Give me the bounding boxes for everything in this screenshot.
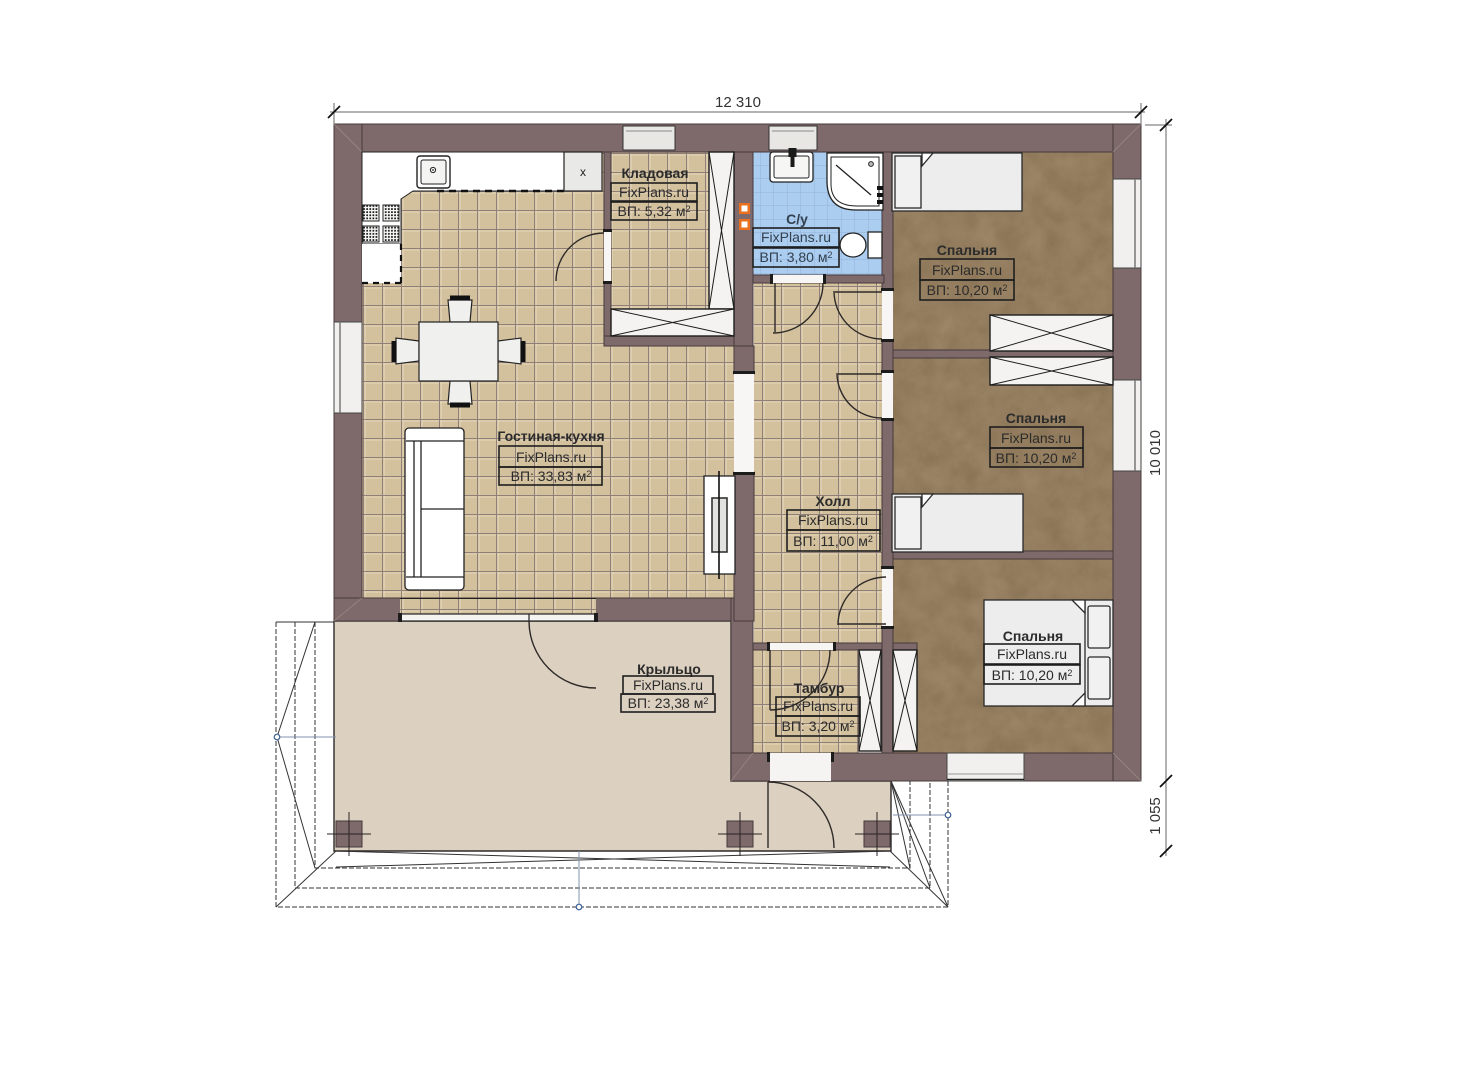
svg-text:Спальня: Спальня <box>937 242 997 258</box>
svg-text:FixPlans.ru: FixPlans.ru <box>761 229 831 245</box>
svg-text:x: x <box>580 165 586 179</box>
svg-text:ВП: 23,38 м2: ВП: 23,38 м2 <box>628 695 709 711</box>
svg-text:ВП: 10,20 м2: ВП: 10,20 м2 <box>992 667 1073 683</box>
svg-text:Холл: Холл <box>815 493 850 509</box>
svg-text:ВП: 3,20 м2: ВП: 3,20 м2 <box>782 718 855 734</box>
svg-text:FixPlans.ru: FixPlans.ru <box>798 512 868 528</box>
svg-text:Кладовая: Кладовая <box>621 165 688 181</box>
svg-text:FixPlans.ru: FixPlans.ru <box>633 677 703 693</box>
svg-text:ВП: 10,20 м2: ВП: 10,20 м2 <box>996 450 1077 466</box>
svg-text:Спальня: Спальня <box>1006 410 1066 426</box>
svg-text:Тамбур: Тамбур <box>794 680 845 696</box>
svg-text:12 310: 12 310 <box>715 94 761 111</box>
svg-text:FixPlans.ru: FixPlans.ru <box>1001 430 1071 446</box>
svg-text:Гостиная-кухня: Гостиная-кухня <box>497 428 604 444</box>
svg-text:ВП: 10,20 м2: ВП: 10,20 м2 <box>927 282 1008 298</box>
svg-text:ВП: 11,00 м2: ВП: 11,00 м2 <box>793 533 873 549</box>
svg-text:FixPlans.ru: FixPlans.ru <box>516 449 586 465</box>
svg-text:10 010: 10 010 <box>1147 430 1164 476</box>
svg-text:FixPlans.ru: FixPlans.ru <box>997 646 1067 662</box>
svg-text:FixPlans.ru: FixPlans.ru <box>932 262 1002 278</box>
svg-text:Спальня: Спальня <box>1003 628 1063 644</box>
svg-text:ВП: 5,32 м2: ВП: 5,32 м2 <box>618 203 691 219</box>
svg-text:ВП: 3,80 м2: ВП: 3,80 м2 <box>760 249 833 265</box>
svg-text:Крыльцо: Крыльцо <box>637 661 701 677</box>
svg-text:FixPlans.ru: FixPlans.ru <box>783 698 853 714</box>
svg-text:FixPlans.ru: FixPlans.ru <box>619 184 689 200</box>
svg-text:С/у: С/у <box>786 211 808 227</box>
svg-text:1 055: 1 055 <box>1147 797 1164 835</box>
svg-text:ВП: 33,83 м2: ВП: 33,83 м2 <box>511 468 592 484</box>
